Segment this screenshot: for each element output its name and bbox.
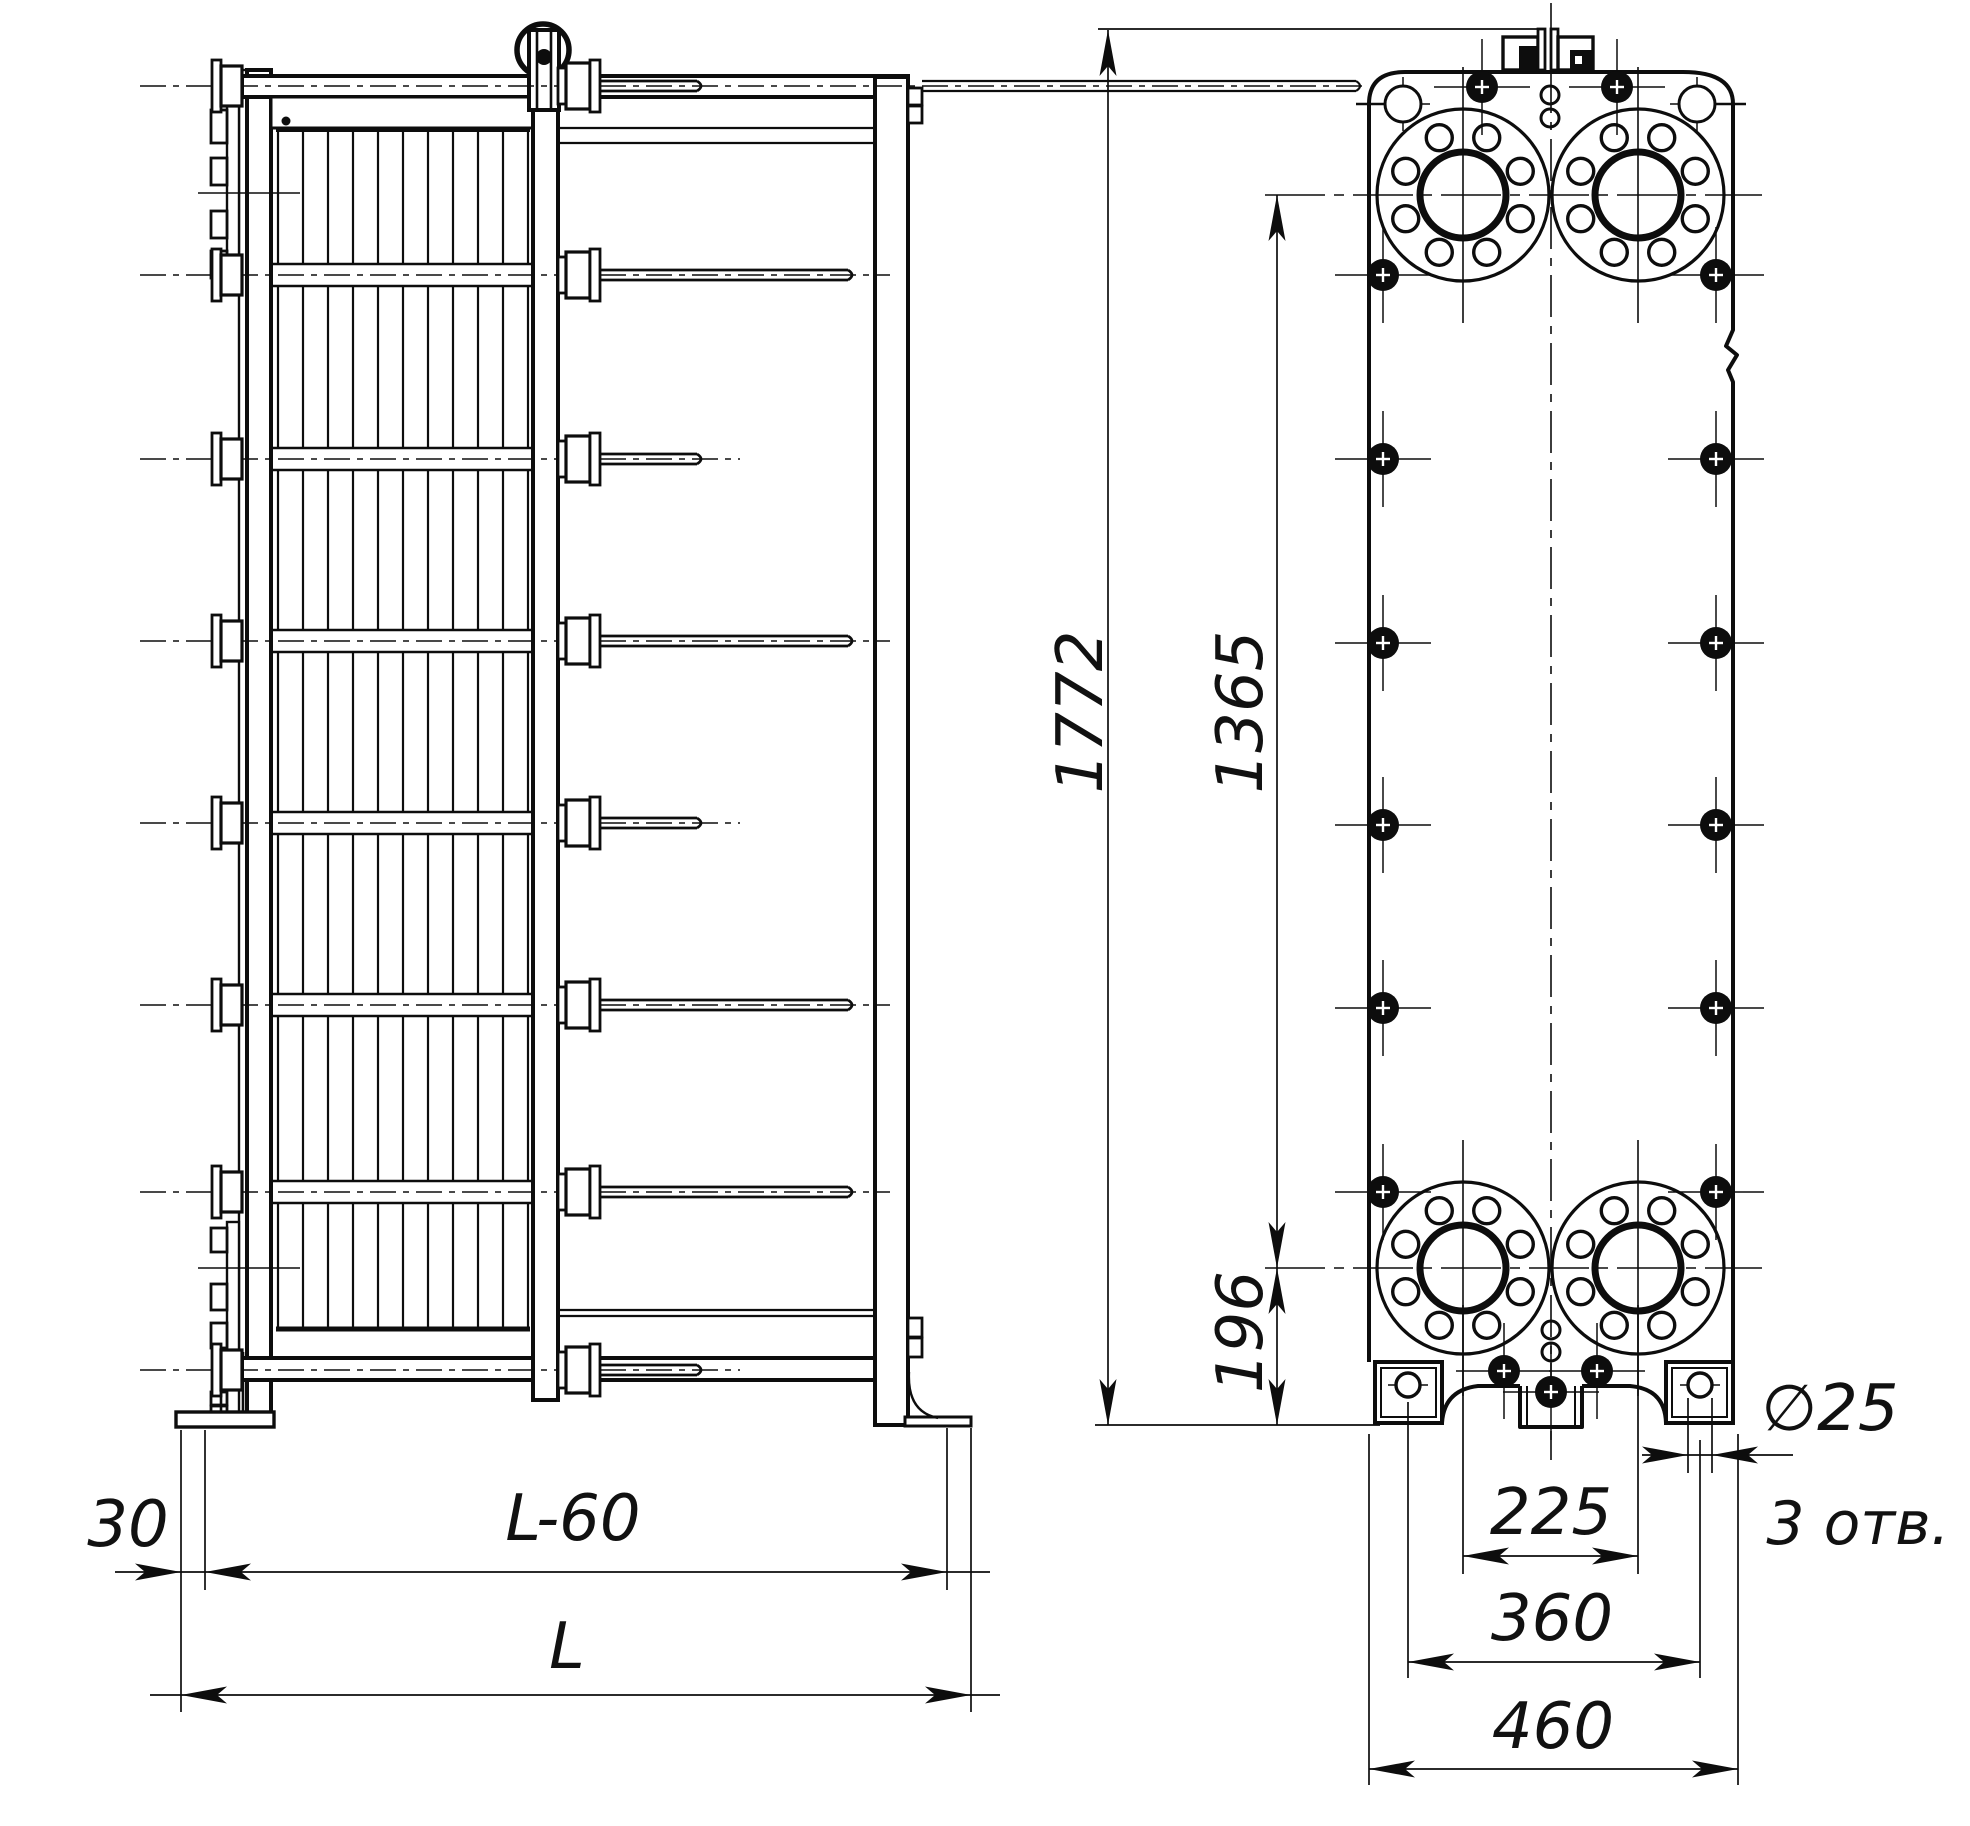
- dim-label-base-width-460: 460: [1492, 1690, 1614, 1764]
- drawing-sheet: 30 L-60 L 1772 1365 196 225 360 460 ∅25 …: [0, 0, 1970, 1826]
- dim-label-hole-diameter-25: ∅25: [1761, 1372, 1898, 1446]
- dim-label-length-minus-60: L-60: [505, 1482, 640, 1556]
- dim-label-foot-hole-spacing-360: 360: [1491, 1582, 1613, 1656]
- dim-label-port-spacing-225: 225: [1490, 1476, 1612, 1550]
- dim-label-total-height-1772: 1772: [1044, 631, 1118, 794]
- dim-label-foot-height-196: 196: [1204, 1271, 1278, 1393]
- plate-heat-exchanger-drawing: 30 L-60 L 1772 1365 196 225 360 460 ∅25 …: [0, 0, 1970, 1826]
- dim-label-port-height-1365: 1365: [1204, 631, 1278, 794]
- dim-label-holes-note: 3 отв.: [1766, 1489, 1949, 1559]
- dim-label-length: L: [549, 1610, 585, 1684]
- dim-label-offset-30: 30: [87, 1488, 168, 1562]
